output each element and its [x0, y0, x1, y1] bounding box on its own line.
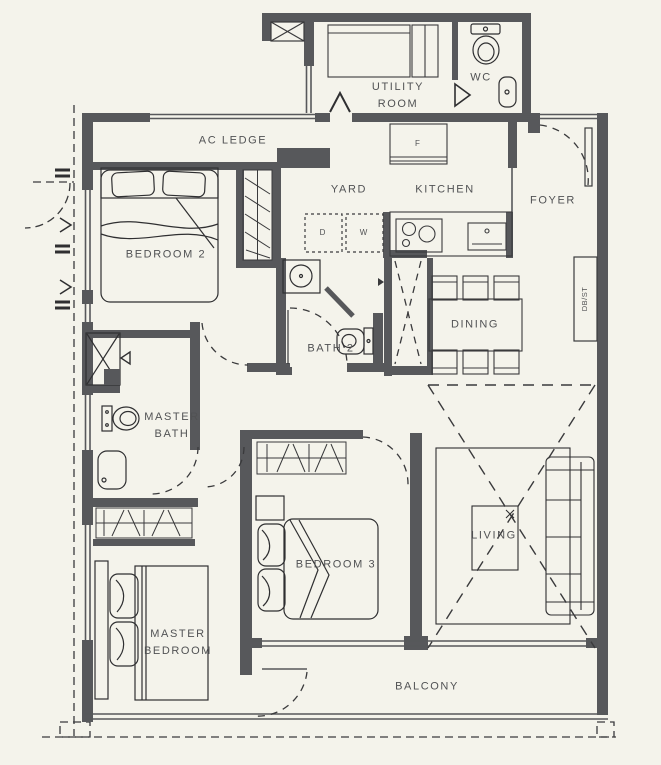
dryer-label: D	[320, 227, 327, 239]
fridge-label: F	[415, 138, 421, 150]
room-label-living: LIVING	[471, 527, 517, 544]
boundary-tick-marks	[55, 170, 70, 308]
bath2-angled-wall	[326, 288, 353, 316]
room-label-bedroom-2: BEDROOM 2	[126, 246, 206, 263]
wc-door-mark	[455, 84, 470, 106]
tall-cabinet-x	[395, 261, 421, 364]
shower-door-mark	[121, 352, 130, 364]
room-label-foyer: FOYER	[530, 192, 576, 209]
boundary-chevrons	[60, 218, 71, 294]
bath2-marker-triangle	[378, 278, 384, 286]
bedroom3-wardrobe	[257, 442, 346, 474]
master-wardrobe	[96, 508, 192, 538]
utility-door-mark	[330, 93, 350, 112]
room-label-yard: YARD	[331, 181, 367, 198]
room-label-wc: WC	[470, 69, 492, 86]
db-st-label: DB/ST	[579, 287, 591, 312]
bedroom2-wardrobe	[243, 170, 272, 260]
room-label-ac-ledge: AC LEDGE	[199, 132, 267, 149]
utility-room-furniture	[328, 25, 438, 77]
wc-fixtures	[471, 24, 516, 107]
floor-plan: AC LEDGE UTILITY ROOM WC BEDROOM 2 YARD …	[0, 0, 661, 765]
room-label-master-bedroom: MASTER BEDROOM	[133, 626, 223, 660]
room-label-dining: DINING	[451, 316, 499, 333]
bedroom2-furniture	[101, 168, 218, 302]
washer-label: W	[360, 227, 369, 239]
room-label-kitchen: KITCHEN	[415, 181, 474, 198]
walls	[82, 13, 608, 722]
room-label-utility-room: UTILITY ROOM	[366, 79, 430, 113]
entrance-door-leaf	[585, 128, 592, 186]
washer-dryer-boxes	[305, 214, 383, 252]
room-label-master-bath: MASTER BATH	[139, 409, 205, 443]
master-bath-fixtures	[86, 333, 139, 489]
floorplan-drawing	[0, 0, 661, 765]
room-label-bath-2: BATH 2	[307, 340, 354, 357]
room-label-bedroom-3: BEDROOM 3	[296, 556, 376, 573]
vent-box	[271, 22, 304, 41]
room-label-balcony: BALCONY	[395, 678, 459, 695]
